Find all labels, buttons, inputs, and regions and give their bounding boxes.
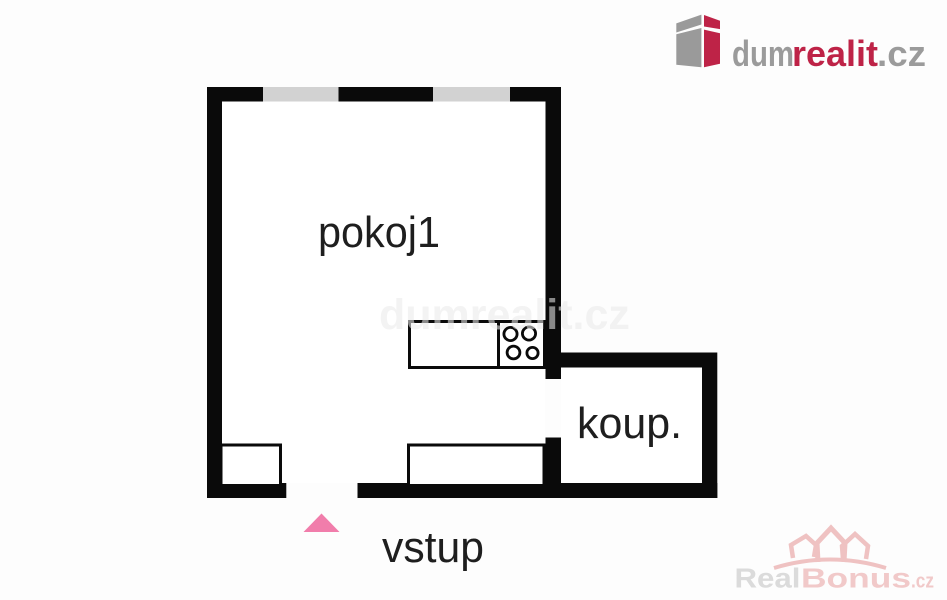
svg-text:vstup: vstup [382,523,484,572]
svg-text:realit: realit [792,33,878,74]
svg-text:dumrealit.cz: dumrealit.cz [379,291,630,339]
svg-text:Real: Real [735,563,801,594]
svg-text:koup.: koup. [577,399,682,448]
svg-text:dum: dum [732,33,794,74]
svg-text:.cz: .cz [911,571,934,593]
svg-text:pokoj1: pokoj1 [318,208,440,257]
svg-text:.cz: .cz [877,33,926,74]
svg-text:Bonus: Bonus [801,563,911,594]
